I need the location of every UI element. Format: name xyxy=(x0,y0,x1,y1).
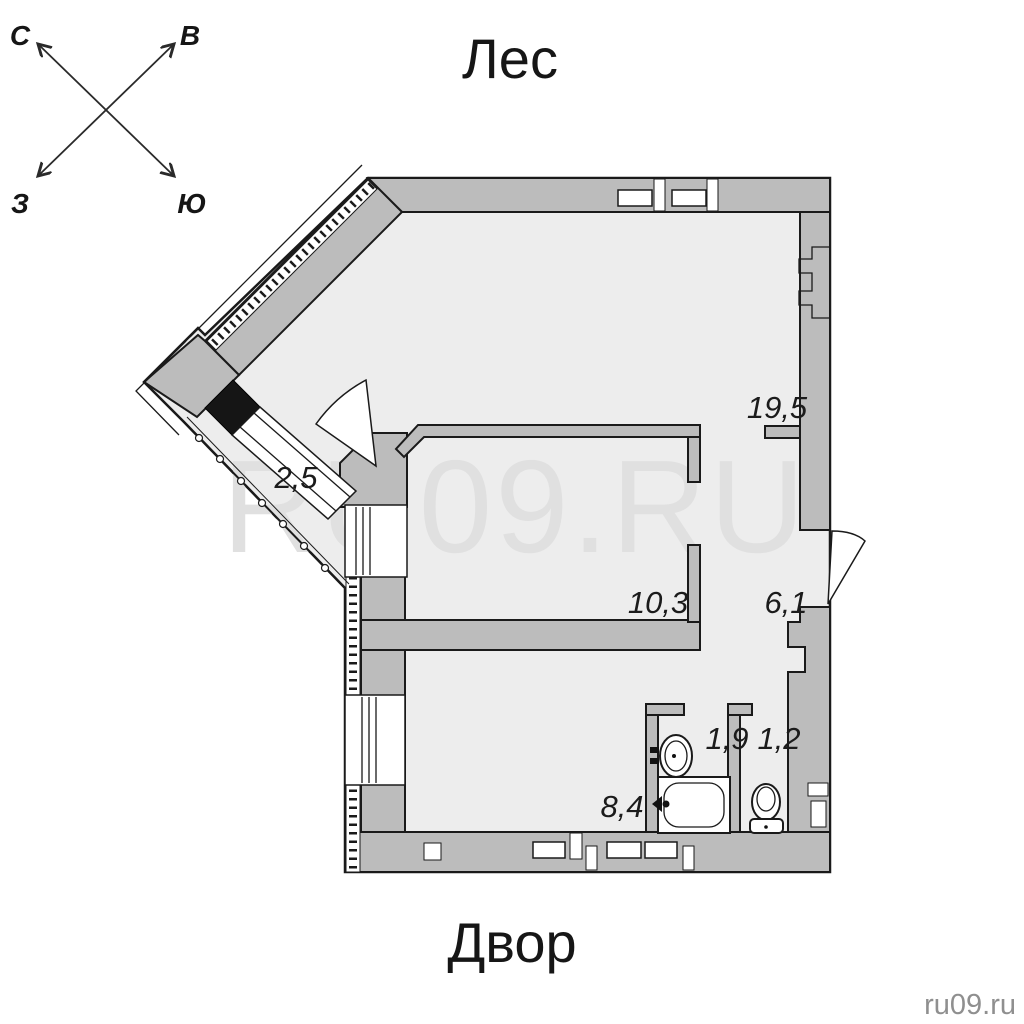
window-top-1 xyxy=(618,190,652,206)
window-left-upper xyxy=(345,505,407,577)
room-area-label: 10,3 xyxy=(628,585,688,620)
railing-post xyxy=(238,478,245,485)
room-area-label: 19,5 xyxy=(747,390,808,425)
entrance-door-leaf xyxy=(828,531,865,604)
vent-slot-top-1 xyxy=(654,179,665,211)
bathtub-faucet-knob xyxy=(663,801,670,808)
wall-right xyxy=(800,212,830,530)
window-top-2 xyxy=(672,190,706,206)
window-left-lower xyxy=(345,695,405,785)
wall-stub-upper xyxy=(688,437,700,482)
wall-interior-horizontal xyxy=(361,620,700,650)
toilet xyxy=(752,784,780,820)
sink-faucet xyxy=(650,747,659,753)
window-bottom-2 xyxy=(607,842,641,858)
vent-slot-bottom-1 xyxy=(570,833,582,859)
wall-bathroom-left-stub xyxy=(646,704,684,715)
window-bottom-3 xyxy=(645,842,677,858)
wall-stub-lower xyxy=(688,545,700,622)
compass-west-label: З xyxy=(11,188,29,219)
wall-bathroom-middle-stub xyxy=(728,704,752,715)
room-area-label: 6,1 xyxy=(764,585,807,620)
railing-post xyxy=(280,521,287,528)
niche-right-2 xyxy=(811,801,826,827)
floor-plan-page: RU09.RU xyxy=(0,0,1024,1024)
wall-bathroom-left xyxy=(646,704,658,832)
toilet-dot xyxy=(764,825,768,829)
vent-slot-top-2 xyxy=(707,179,718,211)
railing-post xyxy=(217,456,224,463)
compass-rose: С В З Ю xyxy=(10,20,207,219)
wall-hole-bottom xyxy=(424,843,441,860)
wall-stub-hall xyxy=(765,426,800,438)
sink-drain xyxy=(672,754,676,758)
sink-faucet xyxy=(650,758,659,764)
railing-post xyxy=(301,543,308,550)
room-area-label: 1,9 xyxy=(705,721,748,756)
vent-slot-bottom-3 xyxy=(683,846,694,870)
window-bottom-1 xyxy=(533,842,565,858)
railing-post xyxy=(259,500,266,507)
floor-plan-svg: RU09.RU xyxy=(0,0,1024,1024)
room-area-label: 1,2 xyxy=(757,721,800,756)
railing-post xyxy=(322,565,329,572)
compass-south-label: Ю xyxy=(177,188,206,219)
wall-top xyxy=(368,178,830,212)
niche-right-1 xyxy=(808,783,828,796)
yard-label: Двор xyxy=(447,911,576,974)
room-area-label: 2,5 xyxy=(273,460,318,495)
compass-north-label: С xyxy=(10,20,31,51)
site-credit: ru09.ru xyxy=(924,989,1016,1021)
forest-label: Лес xyxy=(462,27,558,90)
vent-slot-bottom-2 xyxy=(586,846,597,870)
compass-east-label: В xyxy=(180,20,200,51)
railing-post xyxy=(196,435,203,442)
room-area-label: 8,4 xyxy=(600,789,643,824)
